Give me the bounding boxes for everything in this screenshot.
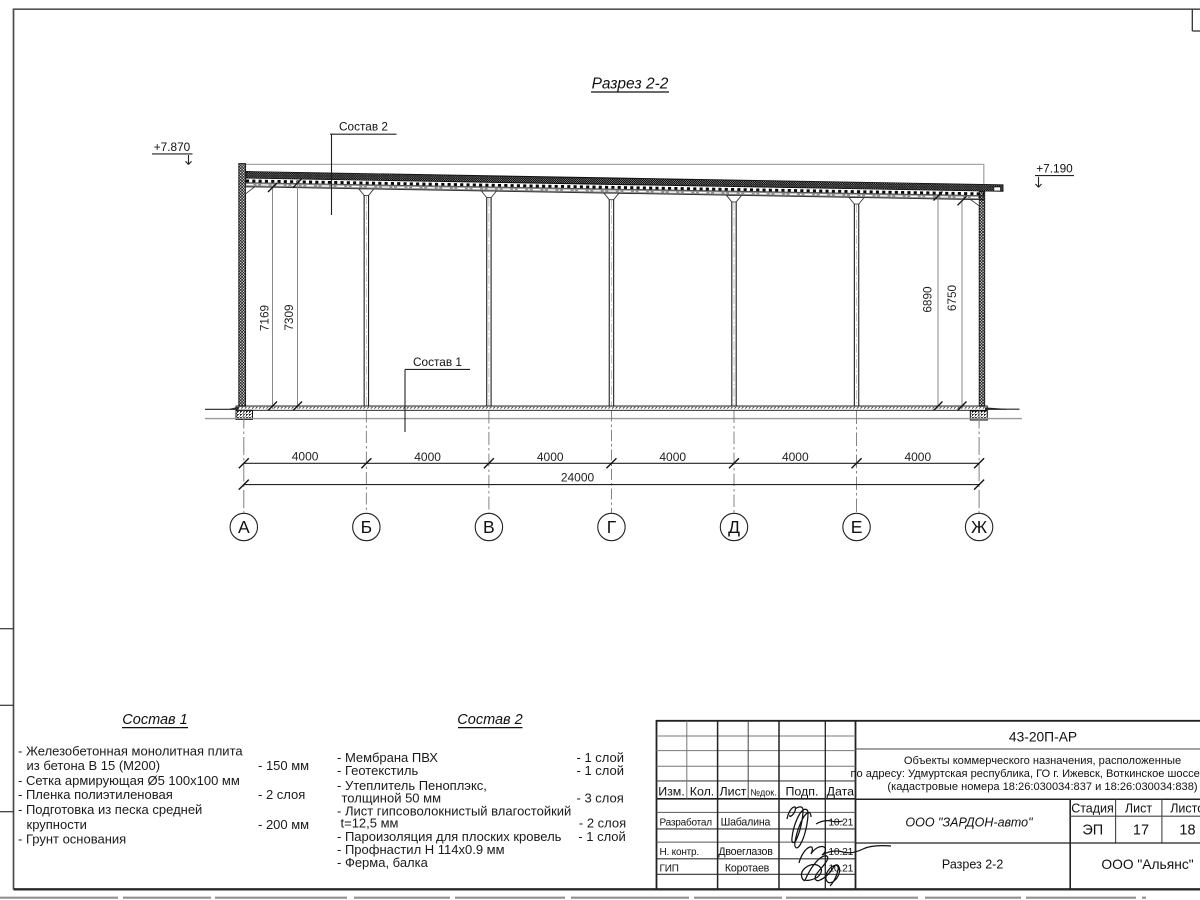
svg-text:+7.190: +7.190: [1036, 162, 1073, 176]
svg-text:(кадастровые номера 18:26:0300: (кадастровые номера 18:26:030034:837 и 1…: [887, 781, 1197, 793]
svg-text:4000: 4000: [292, 450, 319, 464]
svg-text:Е: Е: [851, 517, 863, 537]
svg-text:Г: Г: [607, 517, 617, 537]
svg-text:- 2 слоя: - 2 слоя: [258, 787, 305, 802]
svg-text:Коротаев: Коротаев: [725, 862, 770, 874]
svg-text:Стадия: Стадия: [1071, 802, 1114, 816]
svg-text:из бетона В 15 (М200): из бетона В 15 (М200): [27, 758, 161, 773]
svg-text:6890: 6890: [920, 286, 934, 313]
svg-text:- Геотекстиль: - Геотекстиль: [337, 763, 418, 778]
svg-text:№док.: №док.: [750, 788, 776, 798]
svg-text:24000: 24000: [561, 470, 595, 484]
svg-text:Состав 2: Состав 2: [339, 120, 388, 134]
svg-text:- 3 слоя: - 3 слоя: [577, 791, 624, 806]
svg-text:Н. контр.: Н. контр.: [660, 847, 699, 858]
svg-text:ЭП: ЭП: [1082, 823, 1103, 839]
svg-text:Ж: Ж: [971, 517, 987, 537]
svg-text:Листов: Листов: [1170, 802, 1200, 816]
svg-text:Объекты коммерческого назначен: Объекты коммерческого назначения, распол…: [904, 755, 1181, 767]
svg-text:Лист: Лист: [720, 785, 747, 799]
svg-text:- 150 мм: - 150 мм: [258, 758, 309, 773]
svg-text:- Железобетонная монолитная п: - Железобетонная монолитная плита: [18, 744, 243, 759]
svg-text:4000: 4000: [414, 450, 441, 464]
svg-text:Состав 1: Состав 1: [122, 712, 187, 728]
svg-text:Состав 2: Состав 2: [457, 712, 522, 728]
svg-text:крупности: крупности: [27, 817, 87, 832]
svg-text:17: 17: [1133, 823, 1149, 839]
svg-text:- Ферма, балка: - Ферма, балка: [337, 855, 429, 870]
svg-text:по адресу: Удмуртская республи: по адресу: Удмуртская республика, ГО г. …: [850, 768, 1200, 780]
svg-text:Разработал: Разработал: [660, 816, 713, 828]
svg-text:Лист: Лист: [1125, 802, 1152, 816]
svg-text:Изм.: Изм.: [658, 785, 685, 799]
svg-text:А: А: [238, 517, 250, 537]
svg-text:- Сетка армирующая Ø5 100х100: - Сетка армирующая Ø5 100х100 мм: [18, 773, 240, 788]
svg-text:Разрез 2-2: Разрез 2-2: [942, 858, 1003, 872]
svg-text:Д: Д: [728, 517, 740, 537]
svg-text:Кол.: Кол.: [690, 785, 715, 799]
svg-text:- Пленка полиэтиленовая: - Пленка полиэтиленовая: [18, 787, 173, 802]
svg-text:43-20П-АР: 43-20П-АР: [1009, 730, 1077, 745]
svg-text:- 1 слой: - 1 слой: [577, 763, 625, 778]
svg-text:Состав 1: Состав 1: [413, 355, 462, 369]
svg-text:Б: Б: [361, 517, 372, 537]
svg-text:7309: 7309: [282, 304, 296, 330]
svg-text:ООО "Альянс": ООО "Альянс": [1101, 857, 1193, 872]
svg-text:- 1 слой: - 1 слой: [578, 829, 626, 844]
svg-text:- Подготовка из песка средней: - Подготовка из песка средней: [18, 802, 202, 817]
svg-text:4000: 4000: [659, 450, 686, 464]
svg-text:7169: 7169: [257, 305, 271, 331]
svg-text:4000: 4000: [904, 450, 931, 464]
svg-text:ГИП: ГИП: [660, 863, 679, 874]
svg-text:6750: 6750: [945, 284, 959, 311]
svg-text:ООО "ЗАРДОН-авто": ООО "ЗАРДОН-авто": [905, 815, 1033, 829]
svg-text:Дата: Дата: [827, 785, 855, 799]
svg-text:4000: 4000: [537, 450, 564, 464]
svg-text:Разрез 2-2: Разрез 2-2: [592, 76, 669, 93]
svg-text:- Грунт основания: - Грунт основания: [18, 832, 126, 847]
svg-text:10.21: 10.21: [828, 818, 853, 829]
svg-text:+7.870: +7.870: [154, 140, 191, 154]
svg-text:Шабалина: Шабалина: [721, 816, 771, 828]
svg-text:4000: 4000: [782, 450, 809, 464]
svg-text:- 200 мм: - 200 мм: [258, 817, 309, 832]
svg-text:Двоеглазов: Двоеглазов: [718, 846, 773, 858]
svg-text:Подп.: Подп.: [786, 785, 819, 799]
svg-text:В: В: [483, 517, 495, 537]
svg-text:18: 18: [1179, 823, 1195, 839]
